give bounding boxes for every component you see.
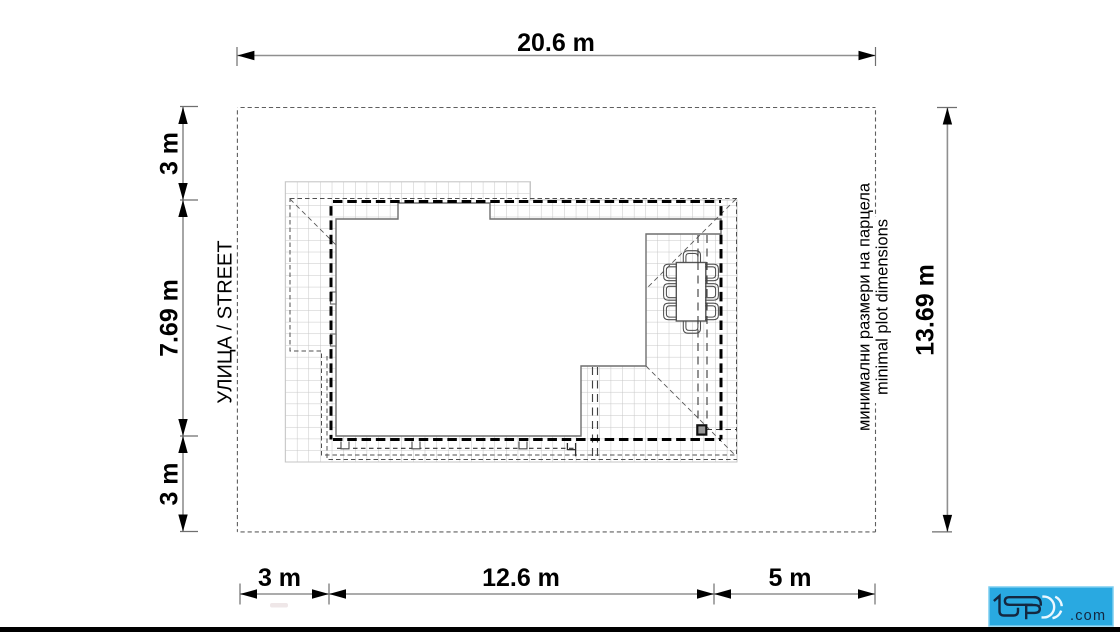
svg-text:3 m: 3 m [156, 132, 184, 175]
svg-text:20.6 m: 20.6 m [517, 29, 595, 57]
svg-text:13.69 m: 13.69 m [912, 264, 940, 356]
svg-text:.com: .com [1070, 608, 1106, 624]
svg-text:7.69 m: 7.69 m [156, 279, 184, 357]
svg-text:3 m: 3 m [258, 564, 301, 592]
svg-text:12.6 m: 12.6 m [482, 564, 560, 592]
svg-text:минимални размери на парцела: минимални размери на парцела [856, 182, 874, 431]
svg-text:УЛИЦА / STREET: УЛИЦА / STREET [215, 240, 237, 403]
svg-text:5 m: 5 m [768, 564, 811, 592]
svg-text:3 m: 3 m [156, 462, 184, 505]
svg-text:minimal plot dimensions: minimal plot dimensions [874, 219, 892, 395]
